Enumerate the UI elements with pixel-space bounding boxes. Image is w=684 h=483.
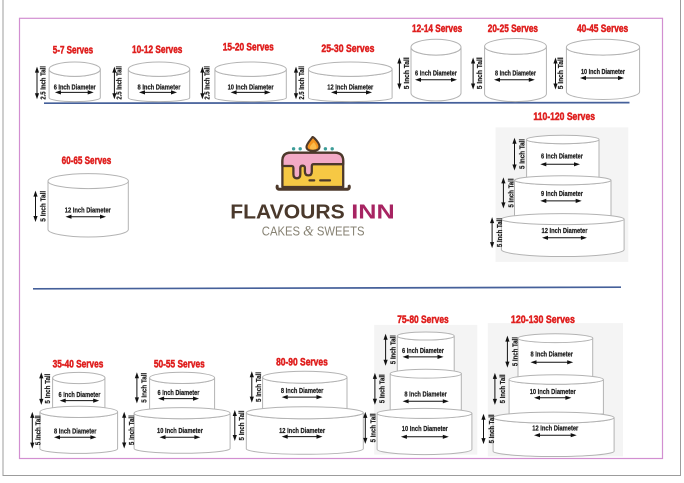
svg-text:INN: INN <box>351 200 394 223</box>
svg-text:2.5 Inch Tall: 2.5 Inch Tall <box>297 66 306 100</box>
svg-text:5 Inch Tall: 5 Inch Tall <box>518 139 527 169</box>
svg-text:6 Inch Diameter: 6 Inch Diameter <box>415 69 457 78</box>
svg-text:6 Inch Diameter: 6 Inch Diameter <box>54 82 96 91</box>
svg-text:CAKES & SWEETS: CAKES & SWEETS <box>262 224 365 240</box>
svg-text:5 Inch Tall: 5 Inch Tall <box>556 57 565 89</box>
svg-text:60-65 Serves: 60-65 Serves <box>62 155 112 167</box>
svg-text:5 Inch Tall: 5 Inch Tall <box>495 218 504 247</box>
svg-text:8 Inch Diameter: 8 Inch Diameter <box>495 69 536 78</box>
svg-text:8 Inch Diameter: 8 Inch Diameter <box>404 389 447 398</box>
svg-text:20-25 Serves: 20-25 Serves <box>488 23 538 35</box>
svg-text:12 Inch Diameter: 12 Inch Diameter <box>542 226 588 235</box>
svg-text:10 Inch Diameter: 10 Inch Diameter <box>157 426 203 435</box>
svg-text:5 Inch Tall: 5 Inch Tall <box>498 374 507 403</box>
svg-text:25-30 Serves: 25-30 Serves <box>321 43 374 55</box>
svg-text:5 Inch Tall: 5 Inch Tall <box>368 413 377 442</box>
svg-text:10 Inch Diameter: 10 Inch Diameter <box>228 82 274 91</box>
svg-text:10 Inch Diameter: 10 Inch Diameter <box>402 424 448 433</box>
svg-text:5 Inch Tall: 5 Inch Tall <box>507 179 516 208</box>
svg-text:5 Inch Tall: 5 Inch Tall <box>43 374 52 404</box>
svg-text:5 Inch Tall: 5 Inch Tall <box>389 335 398 364</box>
svg-text:12-14 Serves: 12-14 Serves <box>412 23 462 35</box>
svg-text:5 Inch Tall: 5 Inch Tall <box>38 191 47 222</box>
svg-text:12 Inch Diameter: 12 Inch Diameter <box>279 426 325 435</box>
svg-text:5 Inch Tall: 5 Inch Tall <box>511 337 520 366</box>
svg-text:15-20 Serves: 15-20 Serves <box>223 42 274 54</box>
svg-text:10 Inch Diameter: 10 Inch Diameter <box>530 387 576 396</box>
svg-text:35-40 Serves: 35-40 Serves <box>53 358 104 370</box>
svg-text:6 Inch Diameter: 6 Inch Diameter <box>402 346 444 355</box>
svg-text:9 Inch Diameter: 9 Inch Diameter <box>541 189 583 198</box>
svg-text:50-55 Serves: 50-55 Serves <box>154 358 205 370</box>
svg-text:12 Inch Diameter: 12 Inch Diameter <box>327 82 373 91</box>
svg-text:5 Inch Tall: 5 Inch Tall <box>33 415 42 445</box>
svg-text:10-12 Serves: 10-12 Serves <box>132 44 182 56</box>
svg-text:5 Inch Tall: 5 Inch Tall <box>140 373 149 403</box>
svg-text:40-45 Serves: 40-45 Serves <box>577 23 628 35</box>
svg-text:5 Inch Tall: 5 Inch Tall <box>127 415 136 445</box>
svg-text:2.5 Inch Tall: 2.5 Inch Tall <box>114 66 123 100</box>
svg-text:12 Inch Diameter: 12 Inch Diameter <box>65 205 111 214</box>
svg-text:8 Inch Diameter: 8 Inch Diameter <box>531 350 574 359</box>
svg-text:5 Inch Tall: 5 Inch Tall <box>487 414 496 443</box>
svg-text:8 Inch Diameter: 8 Inch Diameter <box>281 386 324 395</box>
svg-text:75-80 Serves: 75-80 Serves <box>397 314 449 326</box>
svg-text:5-7 Serves: 5-7 Serves <box>53 45 93 57</box>
svg-text:8 Inch Diameter: 8 Inch Diameter <box>54 426 97 435</box>
svg-text:80-90 Serves: 80-90 Serves <box>276 357 328 369</box>
svg-text:5 Inch Tall: 5 Inch Tall <box>254 372 263 402</box>
svg-text:5 Inch Tall: 5 Inch Tall <box>402 57 411 89</box>
svg-text:2.5 Inch Tall: 2.5 Inch Tall <box>39 66 48 100</box>
svg-text:6 Inch Diameter: 6 Inch Diameter <box>158 388 200 397</box>
svg-text:6 Inch Diameter: 6 Inch Diameter <box>541 152 583 161</box>
svg-text:8 Inch Diameter: 8 Inch Diameter <box>138 82 181 91</box>
svg-text:12 Inch Diameter: 12 Inch Diameter <box>532 424 578 433</box>
svg-text:110-120 Serves: 110-120 Serves <box>533 111 595 123</box>
svg-text:2.5 Inch Tall: 2.5 Inch Tall <box>203 66 212 100</box>
svg-text:10 Inch Diameter: 10 Inch Diameter <box>581 67 625 76</box>
svg-text:5 Inch Tall: 5 Inch Tall <box>237 411 246 441</box>
svg-text:5 Inch Tall: 5 Inch Tall <box>475 57 484 89</box>
svg-text:120-130 Serves: 120-130 Serves <box>511 314 575 326</box>
svg-text:5 Inch Tall: 5 Inch Tall <box>378 374 387 403</box>
svg-text:FLAVOURS: FLAVOURS <box>230 200 344 223</box>
svg-text:6 Inch Diameter: 6 Inch Diameter <box>59 390 101 399</box>
